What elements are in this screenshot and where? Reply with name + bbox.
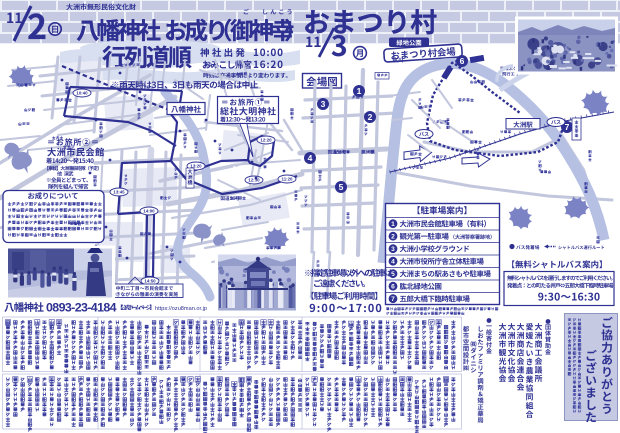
svg-text:12:30: 12:30 <box>248 178 260 183</box>
svg-text:4: 4 <box>308 153 313 163</box>
svg-text:4: 4 <box>391 259 395 266</box>
svg-text:0893-23-4184: 0893-23-4184 <box>46 301 117 315</box>
svg-text:13:45: 13:45 <box>113 190 125 195</box>
svg-text:3: 3 <box>321 99 326 109</box>
svg-text:1: 1 <box>391 221 395 228</box>
svg-text:6: 6 <box>391 284 395 291</box>
svg-text:7: 7 <box>565 122 570 132</box>
svg-text:3: 3 <box>391 246 395 253</box>
svg-text:2: 2 <box>368 112 373 122</box>
svg-text:7: 7 <box>391 296 395 303</box>
svg-text:14:50: 14:50 <box>144 279 156 284</box>
svg-text:11:20: 11:20 <box>282 177 294 182</box>
svg-text:2: 2 <box>391 234 395 241</box>
svg-text:1: 1 <box>357 86 362 96</box>
svg-text:12:20: 12:20 <box>260 138 272 143</box>
svg-text:10:40: 10:40 <box>76 91 88 96</box>
svg-text:https://ozu8man.or.jp: https://ozu8man.or.jp <box>155 306 207 312</box>
svg-text:6: 6 <box>460 56 465 66</box>
svg-text:5: 5 <box>339 182 344 192</box>
svg-text:14:00: 14:00 <box>143 209 155 214</box>
